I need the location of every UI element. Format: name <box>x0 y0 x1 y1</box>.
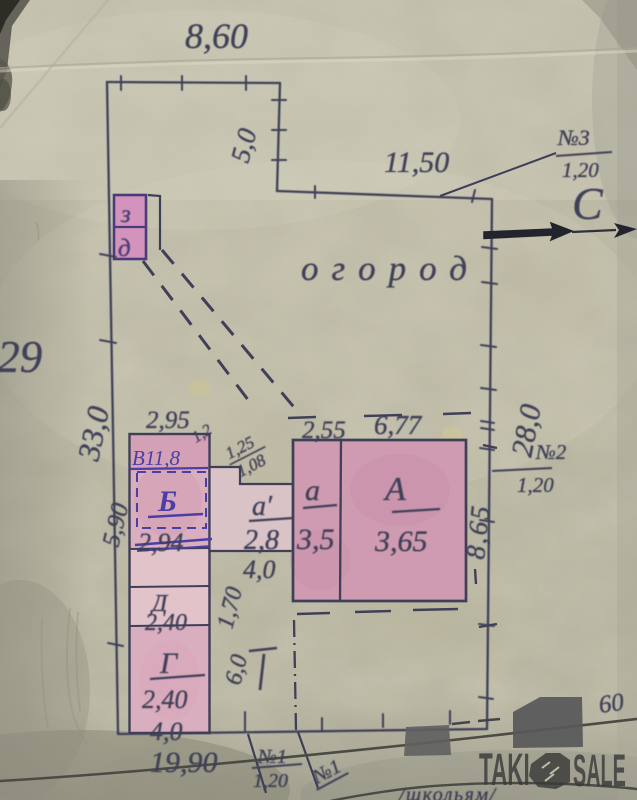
svg-text:2,94: 2,94 <box>138 528 184 557</box>
svg-text:№3: №3 <box>557 125 590 150</box>
svg-text:2,8: 2,8 <box>244 525 279 556</box>
svg-text:4,0: 4,0 <box>150 717 183 746</box>
svg-text:3,5: 3,5 <box>296 523 335 556</box>
svg-text:д: д <box>118 235 131 262</box>
svg-text:2,40: 2,40 <box>142 685 188 714</box>
svg-text:19,90: 19,90 <box>150 746 218 779</box>
svg-text:1,20: 1,20 <box>253 770 288 792</box>
svg-text:Б: Б <box>157 485 177 518</box>
svg-text:3,65: 3,65 <box>374 525 428 558</box>
svg-text:60: 60 <box>597 689 626 719</box>
svg-text:8,60: 8,60 <box>185 16 248 56</box>
svg-text:,29: ,29 <box>0 332 42 382</box>
svg-text:а: а <box>305 474 320 507</box>
svg-text:С: С <box>572 178 604 229</box>
svg-text:1,20: 1,20 <box>517 473 554 497</box>
svg-text:В11,8: В11,8 <box>132 446 181 470</box>
svg-text:2,55: 2,55 <box>302 417 346 444</box>
svg-text:11,50: 11,50 <box>384 146 449 179</box>
svg-text:з: з <box>120 201 131 228</box>
svg-text:№2: №2 <box>535 440 567 464</box>
svg-text:а′: а′ <box>252 491 273 522</box>
svg-text:А: А <box>383 471 406 508</box>
svg-text:огород: огород <box>301 249 480 288</box>
svg-text:SALE: SALE <box>573 747 626 796</box>
svg-text:TAKI: TAKI <box>479 745 530 796</box>
svg-text:Г: Г <box>159 647 179 680</box>
svg-text:8,65: 8,65 <box>460 503 496 561</box>
svg-text:2,40: 2,40 <box>145 610 187 636</box>
svg-text:2,95: 2,95 <box>146 407 190 434</box>
svg-text:4,0: 4,0 <box>243 555 276 584</box>
svg-text:6,77: 6,77 <box>374 410 423 440</box>
